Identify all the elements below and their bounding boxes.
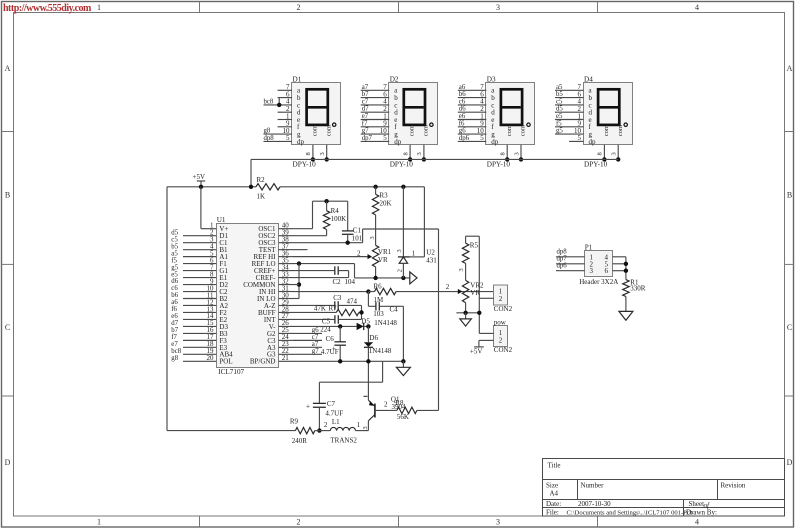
svg-text:Header 3X2A: Header 3X2A (579, 278, 618, 286)
svg-text:TRANS2: TRANS2 (330, 436, 357, 444)
svg-text:R6: R6 (374, 283, 383, 291)
svg-text:b7: b7 (362, 91, 369, 98)
svg-text:2: 2 (297, 3, 301, 12)
svg-text:Revision: Revision (721, 482, 746, 490)
svg-text:c5: c5 (556, 98, 563, 105)
svg-text:b5: b5 (556, 91, 563, 98)
svg-text:3: 3 (611, 152, 618, 155)
svg-text:POL: POL (219, 358, 232, 366)
svg-text:d6: d6 (459, 106, 466, 113)
svg-text:R8: R8 (395, 399, 404, 407)
svg-text:VR1: VR1 (378, 248, 392, 256)
svg-text:g8: g8 (171, 355, 178, 362)
svg-text:2: 2 (396, 269, 403, 272)
svg-text:dp: dp (491, 138, 499, 146)
svg-text:+: + (306, 401, 310, 410)
svg-text:3: 3 (396, 249, 403, 252)
svg-text:Sheet: Sheet (689, 500, 705, 508)
svg-text:g7: g7 (362, 128, 369, 135)
svg-text:C1: C1 (353, 226, 362, 234)
svg-text:1K: 1K (257, 193, 266, 201)
svg-text:C6: C6 (326, 335, 335, 343)
svg-text:dp6: dp6 (557, 262, 568, 269)
svg-text:8: 8 (402, 152, 409, 155)
svg-text:3: 3 (362, 426, 369, 429)
svg-text:f7: f7 (171, 334, 177, 341)
svg-text:g6: g6 (459, 128, 466, 135)
svg-text:2: 2 (297, 518, 301, 527)
svg-text:a7: a7 (362, 84, 369, 91)
svg-text:VR: VR (470, 289, 480, 297)
svg-text:U2: U2 (426, 248, 435, 256)
svg-text:6: 6 (605, 267, 609, 275)
svg-text:e6: e6 (459, 113, 466, 120)
svg-text:D1: D1 (293, 76, 302, 84)
svg-text:com: com (603, 125, 610, 136)
svg-text:f7: f7 (362, 120, 368, 127)
svg-text:1: 1 (357, 421, 361, 429)
svg-text:A4: A4 (550, 490, 559, 498)
svg-text:8: 8 (500, 152, 507, 155)
svg-text:f6: f6 (459, 120, 465, 127)
svg-text:b6: b6 (459, 91, 466, 98)
svg-text:a6: a6 (459, 84, 466, 91)
svg-text:e6: e6 (171, 313, 178, 320)
svg-text:Title: Title (548, 462, 561, 470)
svg-text:DPY-10: DPY-10 (293, 161, 317, 169)
svg-text:c7: c7 (312, 334, 319, 341)
svg-text:VR: VR (378, 256, 388, 264)
svg-text:+5V: +5V (193, 173, 206, 181)
svg-text:2: 2 (357, 250, 361, 258)
svg-text:8: 8 (597, 152, 604, 155)
svg-text:104: 104 (345, 278, 356, 286)
svg-text:3: 3 (416, 152, 423, 155)
svg-text:File:: File: (546, 508, 559, 516)
svg-text:e5: e5 (171, 271, 178, 278)
svg-text:D: D (787, 458, 793, 467)
svg-text:474: 474 (347, 297, 358, 305)
svg-text:L1: L1 (332, 418, 340, 426)
svg-text:C5: C5 (322, 317, 331, 325)
svg-text:100K: 100K (331, 215, 347, 223)
svg-text:d5: d5 (556, 106, 563, 113)
svg-text:B: B (5, 191, 10, 200)
svg-text:e7: e7 (171, 341, 178, 348)
svg-text:1N4148: 1N4148 (374, 319, 397, 327)
svg-text:103: 103 (373, 310, 384, 318)
svg-text:D2: D2 (390, 76, 399, 84)
svg-text:3: 3 (369, 236, 376, 239)
svg-text:CON2: CON2 (494, 305, 513, 313)
svg-text:c6: c6 (171, 285, 178, 292)
svg-text:D6: D6 (369, 334, 378, 342)
svg-text:D5: D5 (361, 318, 370, 326)
svg-text:2: 2 (499, 295, 503, 303)
svg-text:DPY-10: DPY-10 (390, 161, 414, 169)
svg-text:b7: b7 (171, 327, 178, 334)
svg-text:dp8: dp8 (557, 248, 568, 255)
svg-text:f5: f5 (171, 257, 177, 264)
svg-text:P1: P1 (585, 243, 593, 251)
svg-text:e5: e5 (556, 113, 563, 120)
svg-text:g7: g7 (312, 348, 319, 355)
svg-text:U1: U1 (217, 216, 226, 224)
svg-text:dp7: dp7 (557, 255, 568, 262)
svg-text:R5: R5 (470, 241, 479, 249)
svg-text:BP/GND: BP/GND (250, 358, 276, 366)
svg-text:a5: a5 (556, 84, 563, 91)
svg-text:c7: c7 (362, 98, 369, 105)
svg-text:C: C (787, 323, 792, 332)
svg-text:8: 8 (305, 152, 312, 155)
svg-text:d7: d7 (171, 320, 178, 327)
svg-text:20K: 20K (380, 200, 392, 208)
svg-text:3: 3 (496, 3, 500, 12)
svg-text:A: A (787, 64, 793, 73)
svg-text:f6: f6 (171, 306, 177, 313)
svg-text:dp6: dp6 (459, 135, 470, 142)
svg-text:1: 1 (97, 518, 101, 527)
svg-text:D: D (5, 458, 11, 467)
svg-text:com: com (506, 125, 513, 136)
svg-text:pow: pow (494, 319, 507, 327)
svg-text:2: 2 (446, 283, 450, 291)
svg-text:47K: 47K (314, 305, 326, 313)
svg-text:d7: d7 (362, 106, 369, 113)
svg-text:101: 101 (352, 235, 363, 243)
svg-text:A: A (5, 64, 11, 73)
svg-text:2: 2 (324, 421, 328, 429)
svg-text:1N4148: 1N4148 (369, 347, 392, 355)
svg-text:C3: C3 (333, 294, 342, 302)
svg-text:dp8: dp8 (264, 135, 275, 142)
svg-text:4: 4 (695, 518, 699, 527)
svg-text:4: 4 (695, 3, 699, 12)
svg-text:ICL7107: ICL7107 (218, 368, 244, 376)
svg-text:bc8: bc8 (264, 98, 274, 105)
svg-text:R9: R9 (290, 417, 299, 425)
svg-text:1: 1 (97, 3, 101, 12)
svg-text:g8: g8 (264, 128, 271, 135)
svg-text:C7: C7 (327, 400, 336, 408)
svg-text:dp: dp (297, 138, 305, 146)
svg-text:R3: R3 (380, 192, 389, 200)
svg-text:C: C (5, 323, 10, 332)
svg-text:C:\Documents and Settings\..\I: C:\Documents and Settings\..\ICL7107 001… (567, 509, 694, 516)
svg-text:com: com (409, 125, 416, 136)
svg-text:431: 431 (426, 256, 437, 264)
svg-text:+: + (332, 344, 336, 352)
svg-text:1: 1 (412, 249, 416, 257)
svg-text:+5V: +5V (470, 347, 483, 355)
svg-text:dp: dp (589, 138, 597, 146)
svg-text:3: 3 (319, 152, 326, 155)
svg-text:2: 2 (384, 401, 388, 409)
svg-text:240R: 240R (292, 437, 308, 445)
svg-text:com: com (312, 125, 319, 136)
svg-text:com: com (520, 125, 527, 136)
svg-text:C4: C4 (390, 306, 399, 314)
svg-text:b5: b5 (171, 243, 178, 250)
svg-text:R2: R2 (257, 176, 266, 184)
svg-text:2007-10-30: 2007-10-30 (578, 500, 611, 508)
svg-text:d5: d5 (171, 229, 178, 236)
svg-text:R7: R7 (329, 305, 338, 313)
svg-text:Date:: Date: (546, 500, 561, 508)
svg-text:a7: a7 (312, 341, 319, 348)
svg-text:com: com (617, 125, 624, 136)
svg-text:4.7UF: 4.7UF (325, 410, 343, 418)
svg-text:d6: d6 (171, 278, 178, 285)
svg-text:com: com (325, 125, 332, 136)
svg-text:CON2: CON2 (494, 346, 513, 354)
svg-text:g6: g6 (312, 327, 319, 334)
svg-text:B: B (787, 191, 792, 200)
svg-text:dp: dp (394, 138, 402, 146)
svg-text:a5: a5 (171, 250, 178, 257)
svg-text:3: 3 (513, 152, 520, 155)
svg-text:330R: 330R (630, 284, 646, 292)
svg-text:C2: C2 (333, 278, 342, 286)
svg-text:bc8: bc8 (171, 348, 181, 355)
svg-text:a6: a6 (171, 299, 178, 306)
svg-text:g5: g5 (171, 264, 178, 271)
svg-text:Drawn By:: Drawn By: (686, 508, 717, 516)
svg-text:D4: D4 (584, 76, 593, 84)
svg-text:Number: Number (581, 482, 605, 490)
svg-text:DPY-10: DPY-10 (487, 161, 511, 169)
svg-text:D3: D3 (487, 76, 496, 84)
svg-text:e7: e7 (362, 113, 369, 120)
svg-text:http://www.555diy.com: http://www.555diy.com (3, 3, 92, 14)
svg-text:b6: b6 (171, 292, 178, 299)
svg-text:g5: g5 (556, 128, 563, 135)
svg-text:3: 3 (590, 267, 594, 275)
svg-text:3: 3 (458, 268, 465, 271)
svg-text:2: 2 (499, 336, 503, 344)
svg-text:c6: c6 (459, 98, 466, 105)
svg-text:3: 3 (496, 518, 500, 527)
svg-text:56K: 56K (397, 413, 409, 421)
svg-text:Size: Size (546, 482, 558, 490)
svg-text:4.7UF: 4.7UF (321, 348, 339, 356)
svg-text:f5: f5 (556, 120, 562, 127)
svg-text:com: com (423, 125, 430, 136)
svg-text:DPY-10: DPY-10 (584, 161, 608, 169)
svg-text:c5: c5 (171, 236, 178, 243)
svg-text:dp7: dp7 (362, 135, 373, 142)
